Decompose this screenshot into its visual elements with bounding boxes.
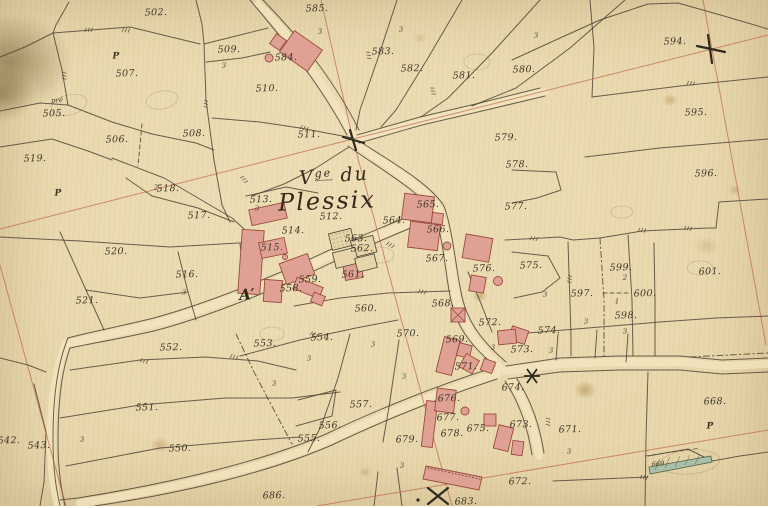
map-linework	[0, 0, 768, 506]
boundary-ticks	[61, 27, 695, 480]
survey-cross-icon	[697, 35, 725, 63]
road-underlays	[51, 4, 768, 506]
survey-cross-icon	[428, 488, 448, 504]
red-survey-lines	[0, 0, 768, 506]
parcel-boundaries	[0, 0, 768, 506]
roads	[53, 0, 768, 506]
village-title-line2: Plessix	[278, 185, 377, 216]
cadastral-map-scan: Vge du Plessix 502.507.505.506.508.509.5…	[0, 0, 768, 506]
buildings	[238, 31, 529, 490]
